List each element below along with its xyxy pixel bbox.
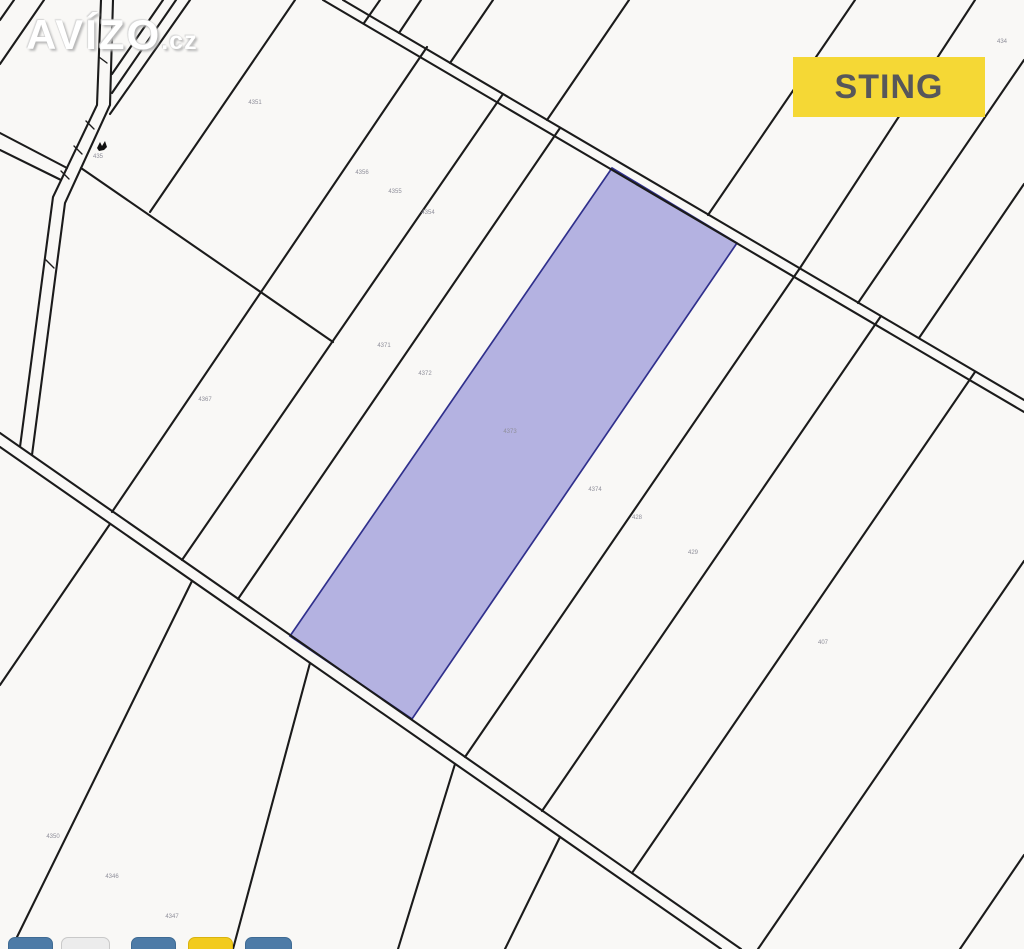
road-line bbox=[0, 433, 741, 949]
parcel-number: 4351 bbox=[248, 100, 261, 106]
parcel-number: 434 bbox=[997, 39, 1007, 45]
share-button-4[interactable] bbox=[188, 937, 233, 949]
parcel-number: 407 bbox=[818, 640, 828, 646]
share-button-3[interactable] bbox=[131, 937, 176, 949]
parcel-number: 4346 bbox=[105, 874, 118, 880]
path-line bbox=[20, 0, 101, 447]
parcel-boundary-line bbox=[81, 168, 333, 342]
parcel-boundary-line bbox=[398, 764, 455, 949]
parcel-number: 4355 bbox=[388, 189, 401, 195]
parcel-boundary-line bbox=[0, 0, 14, 20]
parcel-boundary-line bbox=[0, 524, 110, 685]
highlighted-parcel bbox=[290, 168, 737, 719]
parcel-number: 4356 bbox=[355, 170, 368, 176]
parcel-number: 4372 bbox=[418, 371, 431, 377]
parcel-number: 429 bbox=[688, 550, 698, 556]
parcel-number: 4354 bbox=[421, 210, 434, 216]
parcel-boundary-line bbox=[0, 150, 61, 180]
parcel-boundary-line bbox=[960, 855, 1024, 949]
avizo-watermark: AVÍZO.cz bbox=[26, 14, 198, 56]
parcel-number: 435 bbox=[93, 154, 103, 160]
share-button-1[interactable] bbox=[8, 937, 53, 949]
parcel-boundary-line bbox=[17, 581, 192, 937]
avizo-watermark-text: AVÍZO bbox=[26, 11, 161, 58]
parcel-boundary-line bbox=[547, 0, 629, 120]
share-button-5[interactable] bbox=[245, 937, 292, 949]
parcel-boundary-line bbox=[758, 561, 1024, 949]
parcel-boundary-line bbox=[919, 184, 1024, 338]
sting-agency-badge: STING bbox=[793, 57, 985, 117]
parcel-number: 4371 bbox=[377, 343, 390, 349]
parcel-boundary-line bbox=[450, 0, 493, 63]
parcel-boundary-line bbox=[112, 47, 427, 512]
map-landmark-symbol bbox=[97, 141, 107, 151]
cadastral-map-canvas bbox=[0, 0, 1024, 949]
parcel-boundary-line bbox=[0, 133, 67, 168]
parcel-number: 4350 bbox=[46, 834, 59, 840]
parcel-number: 4367 bbox=[198, 397, 211, 403]
parcel-number: 428 bbox=[632, 515, 642, 521]
parcel-number: 4374 bbox=[588, 487, 601, 493]
avizo-watermark-suffix: .cz bbox=[161, 27, 197, 55]
parcel-boundary-line bbox=[233, 663, 310, 949]
parcel-number: 4347 bbox=[165, 914, 178, 920]
path-tick-mark bbox=[46, 260, 54, 268]
parcel-boundary-line bbox=[632, 372, 975, 873]
parcel-boundary-line bbox=[399, 0, 421, 33]
cadastral-map: 4354351434435643554354436743714372437343… bbox=[0, 0, 1024, 949]
parcel-number: 4373 bbox=[503, 429, 516, 435]
path-line bbox=[32, 0, 113, 455]
parcel-boundary-line bbox=[505, 837, 560, 949]
share-button-2[interactable] bbox=[61, 937, 110, 949]
